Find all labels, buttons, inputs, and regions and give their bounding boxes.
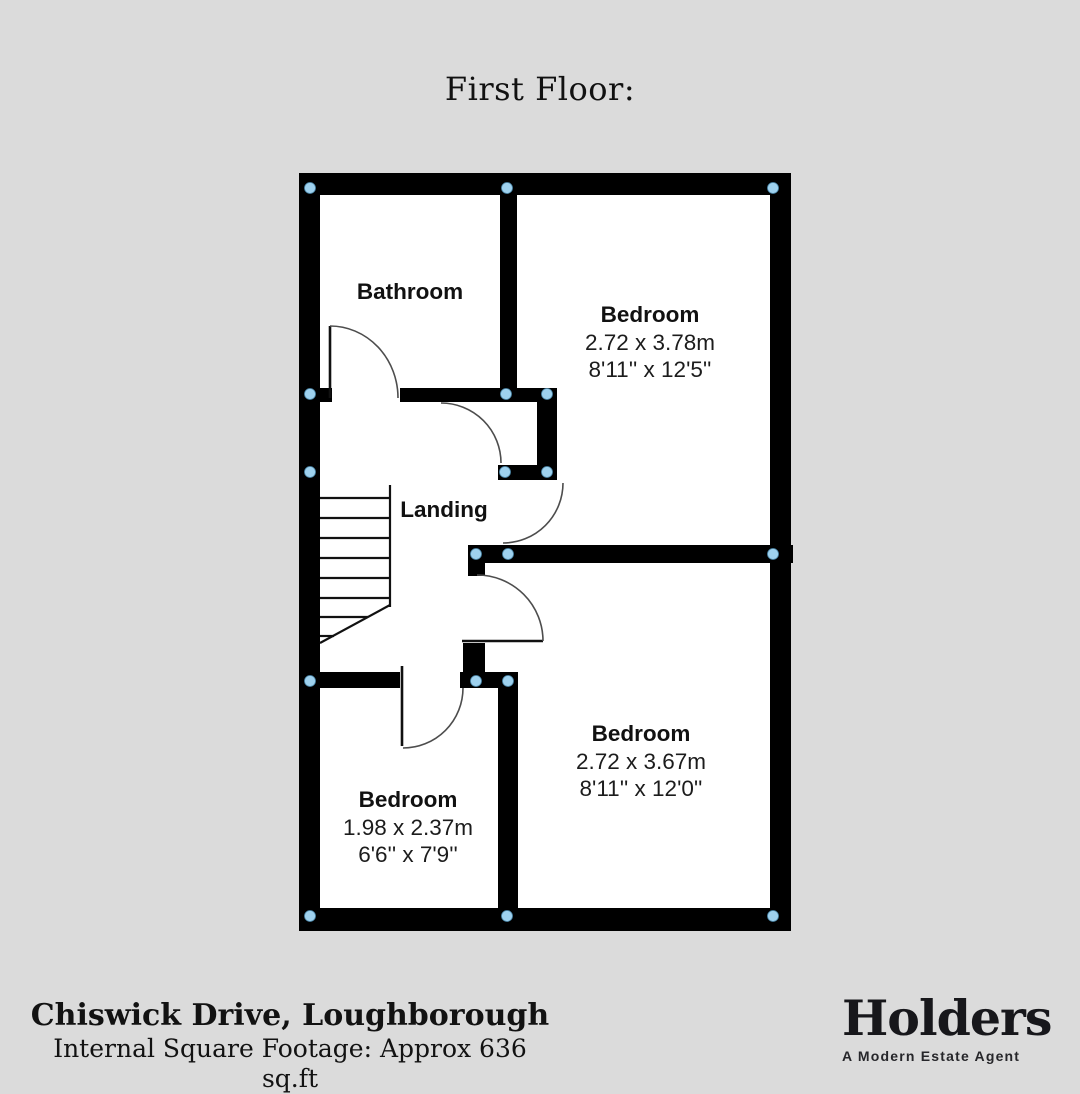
- room-label-bedroom-1: Bedroom: [601, 302, 700, 327]
- junction-dot: [471, 676, 482, 687]
- junction-dot: [501, 389, 512, 400]
- room-dims-metric-bedroom-2: 2.72 x 3.67m: [576, 749, 706, 774]
- room-label-landing: Landing: [400, 497, 487, 522]
- estate-agent-logo: Holders A Modern Estate Agent: [842, 992, 1062, 1064]
- room-dims-metric-bedroom-1: 2.72 x 3.78m: [585, 330, 715, 355]
- wall: [468, 545, 793, 563]
- junction-dot: [503, 549, 514, 560]
- junction-dot: [768, 911, 779, 922]
- junction-dot: [542, 467, 553, 478]
- junction-dot: [502, 911, 513, 922]
- junction-dot: [503, 676, 514, 687]
- room-dims-imperial-bedroom-2: 8'11'' x 12'0'': [580, 776, 703, 801]
- wall: [500, 195, 517, 402]
- wall: [498, 672, 518, 910]
- room-label-bedroom-2: Bedroom: [592, 721, 691, 746]
- floorplan: BathroomBedroom2.72 x 3.78m8'11'' x 12'5…: [0, 0, 1080, 1080]
- junction-dot: [502, 183, 513, 194]
- junction-dot: [305, 676, 316, 687]
- junction-dot: [542, 389, 553, 400]
- junction-dot: [471, 549, 482, 560]
- wall: [299, 173, 320, 930]
- junction-dot: [768, 183, 779, 194]
- wall: [400, 388, 553, 402]
- wall: [299, 173, 791, 195]
- room-dims-metric-bedroom-3: 1.98 x 2.37m: [343, 815, 473, 840]
- wall: [299, 908, 791, 931]
- junction-dot: [768, 549, 779, 560]
- junction-dot: [305, 183, 316, 194]
- junction-dot: [305, 467, 316, 478]
- wall: [468, 563, 485, 576]
- logo-wordmark: Holders: [842, 992, 1062, 1044]
- junction-dot: [305, 389, 316, 400]
- internal-square-footage: Internal Square Footage: Approx 636 sq.f…: [30, 1034, 550, 1094]
- logo-tagline: A Modern Estate Agent: [842, 1048, 1062, 1064]
- room-label-bathroom: Bathroom: [357, 279, 463, 304]
- property-address: Chiswick Drive, Loughborough: [30, 998, 550, 1034]
- junction-dot: [305, 911, 316, 922]
- room-label-bedroom-3: Bedroom: [359, 787, 458, 812]
- junction-dot: [500, 467, 511, 478]
- room-dims-imperial-bedroom-3: 6'6'' x 7'9'': [358, 842, 458, 867]
- room-dims-imperial-bedroom-1: 8'11'' x 12'5'': [589, 357, 712, 382]
